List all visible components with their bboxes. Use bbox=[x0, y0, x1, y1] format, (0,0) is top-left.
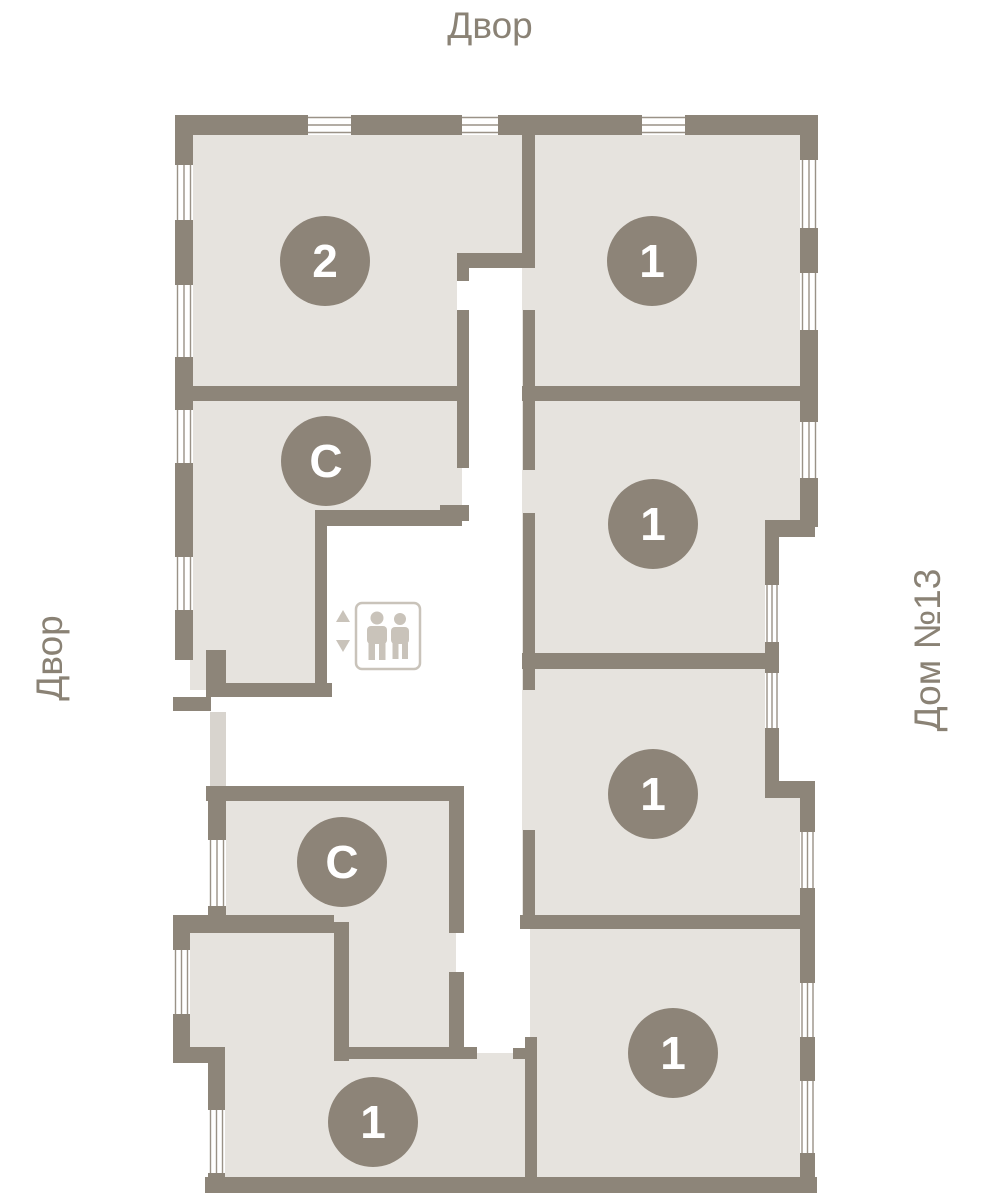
window bbox=[800, 160, 818, 228]
badge-label: 1 bbox=[640, 768, 666, 820]
window bbox=[462, 115, 498, 135]
badge-label: 2 bbox=[312, 235, 338, 287]
window bbox=[175, 410, 193, 463]
floor-plan: 2 1 С 1 1 С 1 1 Двор Дв bbox=[0, 0, 986, 1200]
window bbox=[173, 950, 190, 1014]
window bbox=[208, 840, 226, 906]
window bbox=[765, 585, 779, 642]
window bbox=[642, 115, 685, 135]
badge-apt-1-bottom-right[interactable]: 1 bbox=[628, 1008, 718, 1098]
window bbox=[208, 1110, 225, 1173]
badge-apt-1-right-second[interactable]: 1 bbox=[608, 479, 698, 569]
badge-apt-studio-upper[interactable]: С bbox=[281, 416, 371, 506]
courtyard-label-left: Двор bbox=[29, 615, 70, 700]
badge-apt-1-bottom-left[interactable]: 1 bbox=[328, 1077, 418, 1167]
badge-apt-1-top-right[interactable]: 1 bbox=[607, 216, 697, 306]
window bbox=[308, 115, 351, 135]
elevator-down-arrow-icon bbox=[336, 640, 350, 652]
window bbox=[800, 983, 815, 1037]
window bbox=[765, 673, 779, 728]
badge-apt-2-top-left[interactable]: 2 bbox=[280, 216, 370, 306]
badge-label: 1 bbox=[360, 1096, 386, 1148]
courtyard-label-top: Двор bbox=[447, 5, 532, 46]
badge-apt-studio-lower[interactable]: С bbox=[297, 817, 387, 907]
badge-label: 1 bbox=[640, 498, 666, 550]
badge-apt-1-right-third[interactable]: 1 bbox=[608, 749, 698, 839]
window bbox=[800, 832, 815, 888]
badge-label: 1 bbox=[660, 1027, 686, 1079]
badge-label: С bbox=[309, 435, 342, 487]
floor-plan-page: 2 1 С 1 1 С 1 1 Двор Дв bbox=[0, 0, 986, 1200]
elevator-cabin bbox=[356, 603, 420, 669]
window bbox=[800, 273, 818, 330]
elevator-up-arrow-icon bbox=[336, 610, 350, 622]
badge-label: С bbox=[325, 836, 358, 888]
elevator-icon bbox=[336, 603, 420, 669]
window bbox=[175, 165, 193, 220]
window bbox=[175, 285, 193, 357]
window bbox=[175, 557, 193, 610]
window bbox=[800, 422, 818, 478]
badge-label: 1 bbox=[639, 235, 665, 287]
house-number-label-right: Дом №13 bbox=[907, 569, 948, 732]
window bbox=[800, 1081, 815, 1153]
